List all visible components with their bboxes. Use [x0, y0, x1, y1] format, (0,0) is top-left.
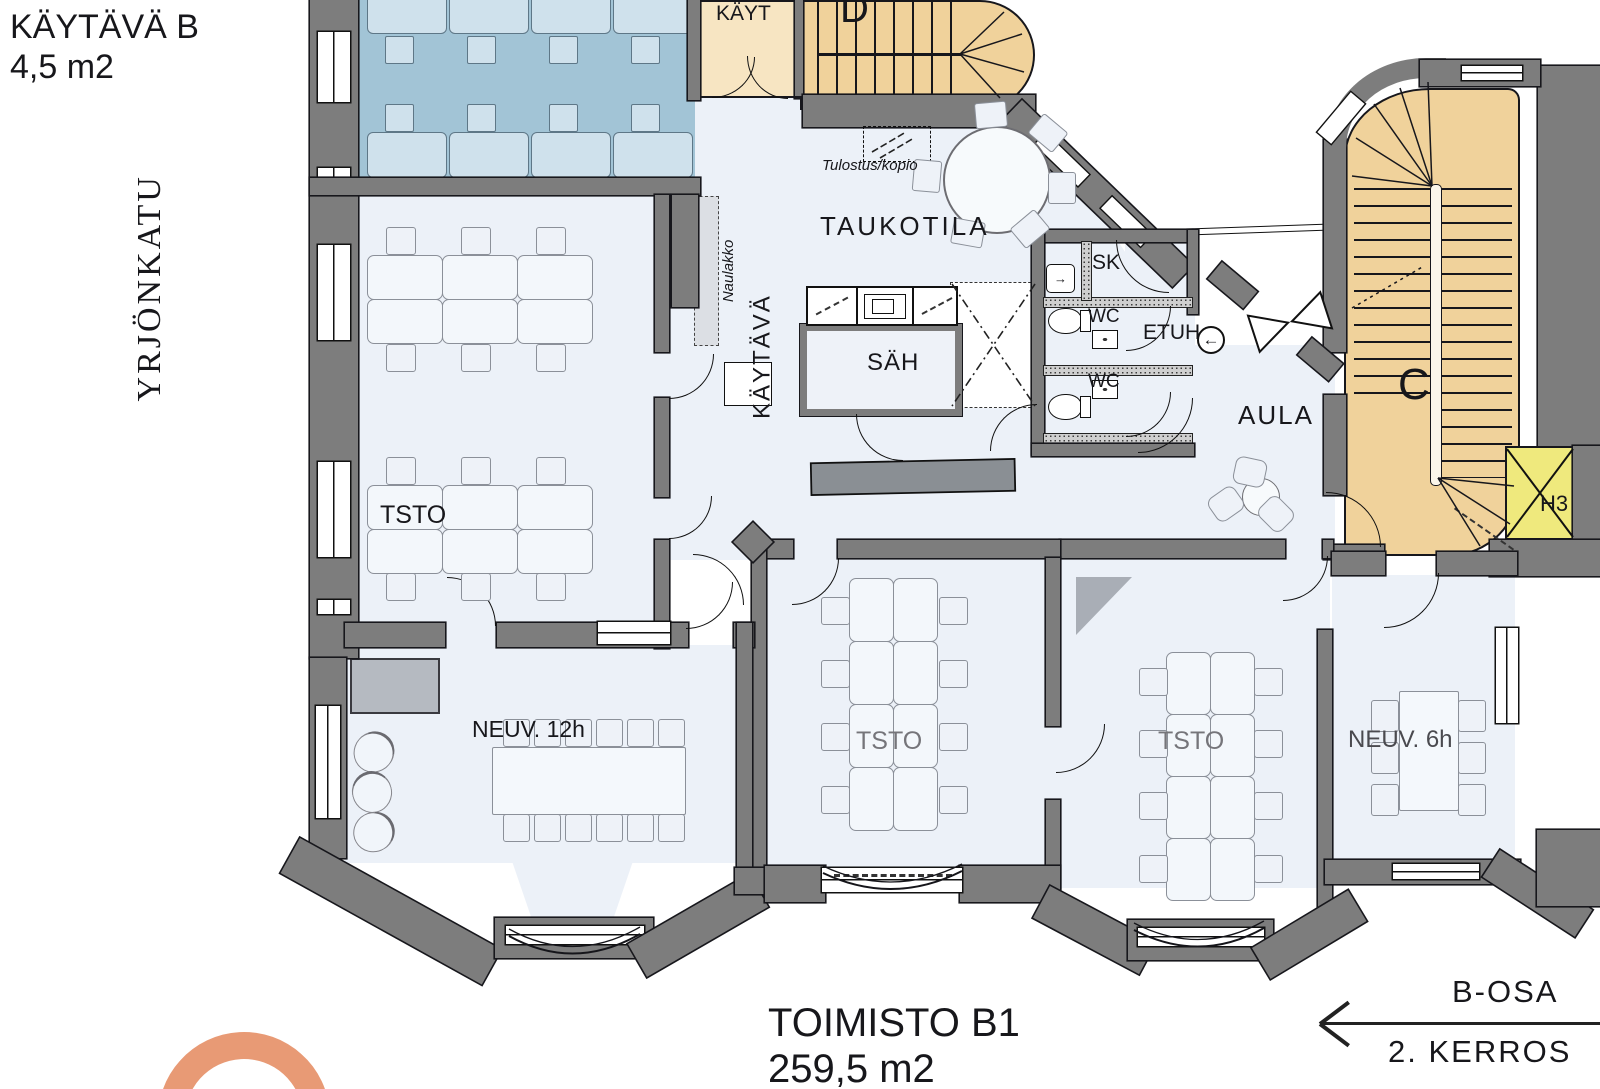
street-name: YRJÖNKATU	[132, 148, 168, 428]
floor-plan: → ←	[0, 0, 1600, 1089]
room-label-stair-d: D	[840, 0, 869, 30]
room-label-tsto-left: TSTO	[380, 502, 446, 528]
corridor-b-area: 4,5 m2	[10, 50, 114, 86]
unit-name: TOIMISTO B1	[768, 1002, 1020, 1044]
unit-area: 259,5 m2	[768, 1048, 935, 1089]
room-label-wc-b: WC	[1088, 372, 1120, 392]
direction-arrow-line	[1322, 1022, 1600, 1025]
room-label-kayt: KÄYT	[716, 3, 771, 25]
room-label-sk: SK	[1092, 252, 1120, 274]
floor-label: 2. KERROS	[1388, 1036, 1571, 1069]
room-label-tsto-right: TSTO	[1158, 728, 1224, 754]
room-label-wc-a: WC	[1088, 307, 1120, 327]
plan-curves-overlay	[0, 0, 1600, 1089]
room-label-tsto-mid: TSTO	[856, 728, 922, 754]
room-label-taukotila: TAUKOTILA	[820, 213, 990, 240]
room-label-etuh: ETUH	[1143, 322, 1200, 344]
room-label-h3: H3	[1540, 492, 1568, 515]
section-label: B-OSA	[1452, 976, 1558, 1009]
entrance-double-door	[1248, 292, 1332, 352]
room-label-stair-c: C	[1398, 362, 1430, 408]
annotation-naulakko: Naulakko	[721, 221, 737, 321]
room-label-neuv12: NEUV. 12h	[472, 717, 585, 741]
annotation-tulostus: Tulostus/kopio	[822, 158, 918, 174]
room-label-kaytava: KÄYTÄVÄ	[749, 287, 774, 427]
room-label-neuv6: NEUV. 6h	[1348, 727, 1453, 752]
room-label-sah: SÄH	[867, 350, 919, 375]
room-label-aula: AULA	[1238, 402, 1314, 429]
corridor-b-label: KÄYTÄVÄ B	[10, 10, 199, 46]
